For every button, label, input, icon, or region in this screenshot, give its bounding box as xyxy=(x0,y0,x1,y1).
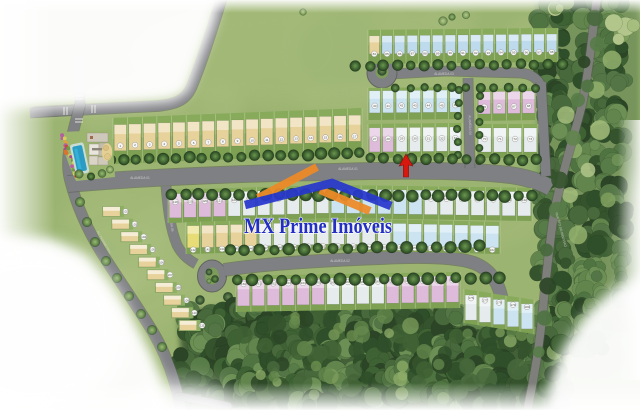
svg-text:162: 162 xyxy=(490,248,495,252)
svg-text:7: 7 xyxy=(207,140,209,144)
svg-text:94: 94 xyxy=(499,51,503,55)
svg-text:40: 40 xyxy=(373,104,377,108)
svg-text:3: 3 xyxy=(149,143,151,147)
svg-text:98: 98 xyxy=(550,50,554,54)
svg-text:30: 30 xyxy=(413,137,417,141)
svg-text:106: 106 xyxy=(159,260,164,264)
svg-text:ALAMEDA 02: ALAMEDA 02 xyxy=(330,259,350,263)
svg-text:8: 8 xyxy=(222,140,224,144)
svg-text:ALAMEDA 04: ALAMEDA 04 xyxy=(468,115,473,135)
svg-text:121: 121 xyxy=(217,199,222,203)
svg-text:90: 90 xyxy=(449,51,453,55)
svg-text:179: 179 xyxy=(510,303,515,307)
svg-text:4: 4 xyxy=(163,142,165,146)
svg-text:70: 70 xyxy=(483,137,487,141)
svg-text:1: 1 xyxy=(119,144,121,148)
svg-text:105: 105 xyxy=(150,248,155,252)
svg-text:119: 119 xyxy=(188,199,193,203)
svg-text:32: 32 xyxy=(440,136,444,140)
svg-text:178: 178 xyxy=(496,301,501,305)
svg-text:42: 42 xyxy=(400,104,404,108)
svg-text:ALAMEDA 01: ALAMEDA 01 xyxy=(338,167,358,171)
svg-text:31: 31 xyxy=(427,137,431,141)
svg-text:72: 72 xyxy=(513,137,517,141)
svg-text:120: 120 xyxy=(202,199,207,203)
svg-text:87: 87 xyxy=(512,105,516,109)
svg-text:107: 107 xyxy=(167,273,172,277)
svg-text:89: 89 xyxy=(436,51,440,55)
svg-text:88: 88 xyxy=(423,52,427,56)
svg-text:108: 108 xyxy=(176,286,181,290)
svg-text:92: 92 xyxy=(474,51,478,55)
svg-text:180: 180 xyxy=(524,305,529,309)
svg-text:118: 118 xyxy=(173,200,178,204)
svg-text:12: 12 xyxy=(280,137,284,141)
svg-text:86: 86 xyxy=(398,52,402,56)
svg-text:164: 164 xyxy=(301,281,306,285)
svg-text:71: 71 xyxy=(498,137,502,141)
svg-text:95: 95 xyxy=(512,51,516,55)
svg-text:13: 13 xyxy=(294,137,298,141)
svg-text:29: 29 xyxy=(400,137,404,141)
svg-text:5: 5 xyxy=(178,142,180,146)
svg-text:87: 87 xyxy=(411,52,415,56)
svg-text:41: 41 xyxy=(386,104,390,108)
svg-text:84: 84 xyxy=(373,52,377,56)
svg-text:11: 11 xyxy=(265,138,268,142)
svg-text:10: 10 xyxy=(250,139,254,143)
svg-text:27: 27 xyxy=(373,137,377,141)
svg-text:14: 14 xyxy=(309,136,313,140)
svg-text:102: 102 xyxy=(123,210,128,214)
svg-text:73: 73 xyxy=(529,137,533,141)
svg-text:176: 176 xyxy=(468,296,473,300)
svg-text:109: 109 xyxy=(184,298,189,302)
svg-text:9: 9 xyxy=(237,139,239,143)
svg-text:44: 44 xyxy=(427,104,431,108)
svg-text:177: 177 xyxy=(482,298,487,302)
svg-text:91: 91 xyxy=(461,51,465,55)
svg-text:143: 143 xyxy=(205,248,210,252)
svg-text:ALAMEDA 01: ALAMEDA 01 xyxy=(130,176,150,180)
svg-text:45: 45 xyxy=(440,103,444,107)
svg-text:104: 104 xyxy=(141,235,146,239)
svg-text:111: 111 xyxy=(200,324,205,328)
svg-text:43: 43 xyxy=(413,104,417,108)
svg-text:96: 96 xyxy=(525,50,529,54)
svg-text:110: 110 xyxy=(192,311,197,315)
svg-text:97: 97 xyxy=(537,50,541,54)
svg-text:85: 85 xyxy=(385,52,389,56)
svg-text:ALAMEDA 03: ALAMEDA 03 xyxy=(434,72,454,76)
svg-text:16: 16 xyxy=(338,135,342,139)
svg-text:144: 144 xyxy=(219,247,224,251)
svg-text:17: 17 xyxy=(353,134,357,138)
svg-text:88: 88 xyxy=(527,104,531,108)
svg-text:6: 6 xyxy=(193,141,195,145)
svg-text:93: 93 xyxy=(487,51,491,55)
svg-text:103: 103 xyxy=(132,222,137,226)
svg-text:2: 2 xyxy=(134,143,136,147)
svg-text:MX Prime Imóveis: MX Prime Imóveis xyxy=(244,213,392,238)
svg-text:142: 142 xyxy=(191,248,196,252)
svg-text:28: 28 xyxy=(386,137,390,141)
svg-text:86: 86 xyxy=(497,105,501,109)
svg-text:15: 15 xyxy=(324,136,328,140)
